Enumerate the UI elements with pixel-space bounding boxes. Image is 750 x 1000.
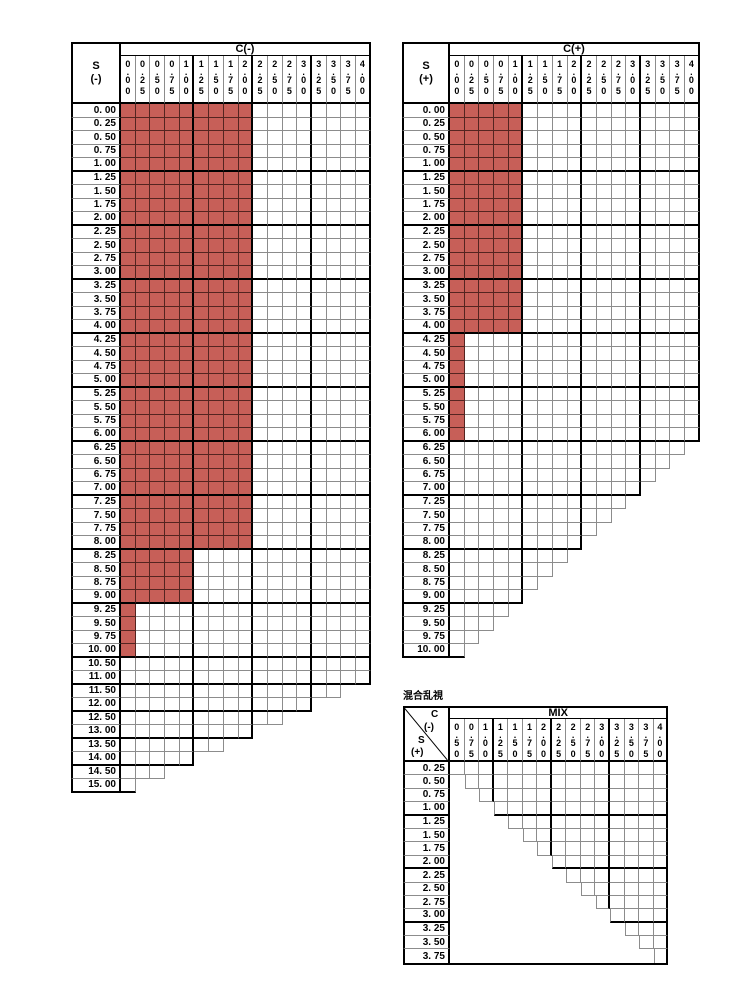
grid-cell bbox=[209, 725, 224, 739]
grid-cell bbox=[253, 158, 268, 172]
grid-cell bbox=[312, 536, 327, 550]
grid-cell bbox=[479, 536, 494, 550]
grid-cell bbox=[479, 762, 494, 775]
grid-cell bbox=[297, 442, 312, 456]
grid-cell bbox=[312, 604, 327, 618]
available-cell bbox=[479, 131, 494, 145]
grid-cell bbox=[121, 658, 136, 672]
grid-cell bbox=[283, 455, 298, 469]
grid-cell bbox=[283, 307, 298, 321]
grid-cell bbox=[597, 509, 612, 523]
grid-cell bbox=[253, 577, 268, 591]
grid-cell bbox=[568, 131, 583, 145]
grid-cell bbox=[494, 428, 509, 442]
available-cell bbox=[479, 280, 494, 294]
available-cell bbox=[150, 496, 165, 510]
available-cell bbox=[136, 401, 151, 415]
available-cell bbox=[165, 334, 180, 348]
grid-cell bbox=[268, 523, 283, 537]
grid-cell bbox=[150, 766, 165, 780]
grid-cell bbox=[553, 239, 568, 253]
grid-cell bbox=[685, 185, 700, 199]
available-cell bbox=[239, 280, 254, 294]
table-row: 3. 50 bbox=[403, 936, 668, 949]
staircase-spacer bbox=[450, 923, 625, 936]
grid-cell bbox=[253, 401, 268, 415]
available-cell bbox=[509, 118, 524, 132]
grid-cell bbox=[283, 698, 298, 712]
row-label: 1. 50 bbox=[71, 185, 121, 199]
table-row: 4. 50 bbox=[71, 347, 371, 361]
available-cell bbox=[509, 226, 524, 240]
grid-cell bbox=[253, 712, 268, 726]
column-header-digit: 5 bbox=[639, 749, 653, 760]
available-cell bbox=[239, 415, 254, 429]
corner-label: C bbox=[431, 709, 438, 720]
grid-cell bbox=[610, 762, 625, 775]
grid-cell bbox=[239, 644, 254, 658]
grid-cell bbox=[612, 347, 627, 361]
grid-cell bbox=[180, 617, 195, 631]
grid-cell bbox=[597, 280, 612, 294]
row-label: 5. 25 bbox=[402, 388, 450, 402]
grid-cell bbox=[538, 536, 553, 550]
available-cell bbox=[494, 104, 509, 118]
grid-cell bbox=[180, 644, 195, 658]
grid-cell bbox=[656, 347, 671, 361]
corner-cell: S(-) bbox=[71, 42, 121, 104]
column-header-digit: 0 bbox=[121, 86, 135, 97]
grid-cell bbox=[341, 185, 356, 199]
table-row: 7. 50 bbox=[71, 509, 371, 523]
available-cell bbox=[239, 266, 254, 280]
grid-cell bbox=[136, 658, 151, 672]
grid-cell bbox=[253, 550, 268, 564]
grid-cell bbox=[268, 104, 283, 118]
grid-cell bbox=[523, 455, 538, 469]
row-label: 9. 00 bbox=[71, 590, 121, 604]
grid-cell bbox=[312, 253, 327, 267]
grid-cell bbox=[537, 762, 552, 775]
staircase-spacer bbox=[450, 802, 494, 815]
grid-cell bbox=[509, 482, 524, 496]
grid-cell bbox=[283, 212, 298, 226]
grid-cell bbox=[356, 482, 371, 496]
available-cell bbox=[165, 131, 180, 145]
grid-cell bbox=[165, 698, 180, 712]
available-cell bbox=[224, 266, 239, 280]
available-cell bbox=[224, 347, 239, 361]
table-row: 3. 75 bbox=[71, 307, 371, 321]
row-label: 5. 00 bbox=[71, 374, 121, 388]
available-cell bbox=[180, 145, 195, 159]
grid-cell bbox=[625, 923, 640, 936]
grid-cell bbox=[465, 617, 480, 631]
grid-cell bbox=[654, 802, 669, 815]
column-header-digit: 0 bbox=[595, 738, 608, 749]
available-cell bbox=[194, 185, 209, 199]
available-cell bbox=[121, 550, 136, 564]
available-cell bbox=[121, 428, 136, 442]
column-header-digit: 5 bbox=[136, 86, 150, 97]
grid-cell bbox=[581, 842, 596, 855]
grid-cell bbox=[224, 671, 239, 685]
grid-cell bbox=[194, 604, 209, 618]
grid-cell bbox=[670, 199, 685, 213]
grid-cell bbox=[494, 455, 509, 469]
available-cell bbox=[121, 469, 136, 483]
grid-cell bbox=[553, 172, 568, 186]
grid-cell bbox=[312, 118, 327, 132]
row-label: 7. 25 bbox=[402, 496, 450, 510]
row-label: 0. 75 bbox=[403, 789, 450, 802]
table-row: 4. 50 bbox=[402, 347, 700, 361]
grid-cell bbox=[641, 374, 656, 388]
grid-cell bbox=[523, 482, 538, 496]
table-row: 1. 50 bbox=[71, 185, 371, 199]
table-row: 3. 50 bbox=[71, 293, 371, 307]
column-header-digit: 2 bbox=[523, 75, 537, 86]
column-header: 1.75 bbox=[553, 56, 568, 104]
grid-cell bbox=[509, 415, 524, 429]
grid-cell bbox=[356, 563, 371, 577]
column-header-digit: 2 bbox=[136, 75, 150, 86]
grid-cell bbox=[552, 829, 567, 842]
grid-cell bbox=[327, 496, 342, 510]
grid-cell bbox=[283, 334, 298, 348]
row-label: 0. 25 bbox=[402, 118, 450, 132]
staircase-spacer bbox=[450, 949, 654, 962]
grid-cell bbox=[582, 266, 597, 280]
grid-cell bbox=[268, 401, 283, 415]
grid-cell bbox=[327, 577, 342, 591]
available-cell bbox=[239, 253, 254, 267]
grid-cell bbox=[625, 762, 640, 775]
grid-cell bbox=[641, 185, 656, 199]
available-cell bbox=[479, 226, 494, 240]
grid-cell bbox=[312, 212, 327, 226]
grid-cell bbox=[595, 789, 610, 802]
grid-cell bbox=[121, 766, 136, 780]
grid-cell bbox=[685, 199, 700, 213]
grid-cell bbox=[356, 442, 371, 456]
available-cell bbox=[194, 401, 209, 415]
grid-cell bbox=[582, 523, 597, 537]
grid-cell bbox=[597, 185, 612, 199]
grid-cell bbox=[253, 658, 268, 672]
available-cell bbox=[121, 482, 136, 496]
grid-cell bbox=[612, 307, 627, 321]
grid-cell bbox=[566, 856, 581, 869]
column-header-digit: 5 bbox=[566, 738, 580, 749]
available-cell bbox=[180, 415, 195, 429]
table-row: 5. 00 bbox=[71, 374, 371, 388]
available-cell bbox=[494, 145, 509, 159]
grid-cell bbox=[341, 550, 356, 564]
column-header-digit: 2 bbox=[641, 75, 655, 86]
column-header: 2.75 bbox=[283, 56, 298, 104]
grid-cell bbox=[612, 442, 627, 456]
column-header-digit: 0 bbox=[150, 86, 164, 97]
grid-cell bbox=[494, 469, 509, 483]
grid-cell bbox=[165, 671, 180, 685]
grid-cell bbox=[595, 883, 610, 896]
grid-cell bbox=[641, 388, 656, 402]
grid-cell bbox=[312, 442, 327, 456]
grid-cell bbox=[553, 266, 568, 280]
grid-cell bbox=[327, 455, 342, 469]
grid-cell bbox=[553, 442, 568, 456]
grid-cell bbox=[121, 712, 136, 726]
column-header: 2.00 bbox=[568, 56, 583, 104]
grid-cell bbox=[581, 762, 596, 775]
table-row: 13. 50 bbox=[71, 739, 371, 753]
grid-cell bbox=[312, 401, 327, 415]
grid-cell bbox=[327, 401, 342, 415]
grid-cell bbox=[327, 550, 342, 564]
grid-cell bbox=[283, 685, 298, 699]
available-cell bbox=[239, 401, 254, 415]
grid-cell bbox=[180, 698, 195, 712]
grid-cell bbox=[538, 199, 553, 213]
available-cell bbox=[180, 590, 195, 604]
grid-cell bbox=[297, 509, 312, 523]
table-row: 7. 25 bbox=[71, 496, 371, 510]
available-cell bbox=[150, 428, 165, 442]
grid-cell bbox=[450, 631, 465, 645]
grid-cell bbox=[523, 775, 538, 788]
column-header: 2.25 bbox=[253, 56, 268, 104]
grid-cell bbox=[356, 266, 371, 280]
grid-cell bbox=[597, 104, 612, 118]
grid-cell bbox=[494, 361, 509, 375]
grid-cell bbox=[538, 172, 553, 186]
grid-cell bbox=[656, 293, 671, 307]
row-label: 9. 75 bbox=[71, 631, 121, 645]
row-label: 3. 50 bbox=[71, 293, 121, 307]
available-cell bbox=[209, 145, 224, 159]
available-cell bbox=[150, 401, 165, 415]
available-cell bbox=[180, 455, 195, 469]
grid-cell bbox=[239, 617, 254, 631]
grid-cell bbox=[523, 388, 538, 402]
staircase-spacer bbox=[450, 909, 610, 922]
row-label: 2. 25 bbox=[71, 226, 121, 240]
column-header-digit: 7 bbox=[465, 738, 479, 749]
grid-cell bbox=[553, 347, 568, 361]
grid-cell bbox=[341, 671, 356, 685]
available-cell bbox=[150, 293, 165, 307]
column-header-digit: 2 bbox=[253, 75, 267, 86]
available-cell bbox=[479, 118, 494, 132]
grid-cell bbox=[494, 523, 509, 537]
grid-cell bbox=[283, 536, 298, 550]
grid-cell bbox=[670, 374, 685, 388]
available-cell bbox=[180, 428, 195, 442]
grid-cell bbox=[165, 685, 180, 699]
available-cell bbox=[465, 307, 480, 321]
available-cell bbox=[209, 320, 224, 334]
row-label: 1. 75 bbox=[71, 199, 121, 213]
grid-cell bbox=[597, 131, 612, 145]
grid-cell bbox=[356, 523, 371, 537]
grid-cell bbox=[538, 523, 553, 537]
grid-cell bbox=[508, 775, 523, 788]
grid-cell bbox=[253, 320, 268, 334]
available-cell bbox=[209, 455, 224, 469]
row-label: 1. 00 bbox=[71, 158, 121, 172]
column-header-digit: 0 bbox=[450, 75, 464, 86]
available-cell bbox=[465, 293, 480, 307]
grid-cell bbox=[327, 158, 342, 172]
grid-cell bbox=[283, 496, 298, 510]
grid-cell bbox=[356, 280, 371, 294]
available-cell bbox=[209, 415, 224, 429]
column-header: 0.25 bbox=[465, 56, 480, 104]
row-label: 14. 00 bbox=[71, 752, 121, 766]
grid-cell bbox=[494, 536, 509, 550]
available-cell bbox=[121, 253, 136, 267]
grid-cell bbox=[552, 816, 567, 829]
available-cell bbox=[136, 388, 151, 402]
available-cell bbox=[224, 428, 239, 442]
grid-cell bbox=[538, 563, 553, 577]
column-header: 2.50 bbox=[566, 719, 581, 762]
available-cell bbox=[194, 469, 209, 483]
available-cell bbox=[150, 415, 165, 429]
grid-cell bbox=[209, 617, 224, 631]
grid-cell bbox=[312, 509, 327, 523]
row-label: 3. 75 bbox=[402, 307, 450, 321]
grid-cell bbox=[465, 577, 480, 591]
grid-cell bbox=[356, 199, 371, 213]
grid-cell bbox=[626, 172, 641, 186]
available-cell bbox=[180, 185, 195, 199]
table-row: 8. 50 bbox=[402, 563, 700, 577]
grid-cell bbox=[297, 496, 312, 510]
available-cell bbox=[121, 442, 136, 456]
grid-cell bbox=[341, 199, 356, 213]
corner-label: S bbox=[92, 60, 99, 73]
grid-cell bbox=[568, 212, 583, 226]
column-header: 3.50 bbox=[625, 719, 640, 762]
grid-cell bbox=[553, 280, 568, 294]
column-header-digit: 5 bbox=[523, 749, 537, 760]
grid-cell bbox=[356, 590, 371, 604]
table-row: 1. 50 bbox=[402, 185, 700, 199]
grid-cell bbox=[538, 212, 553, 226]
table-row: 2. 25 bbox=[402, 226, 700, 240]
available-cell bbox=[165, 563, 180, 577]
grid-cell bbox=[523, 563, 538, 577]
grid-cell bbox=[566, 775, 581, 788]
grid-cell bbox=[509, 496, 524, 510]
grid-cell bbox=[553, 185, 568, 199]
column-header-digit: 7 bbox=[639, 738, 653, 749]
grid-cell bbox=[297, 145, 312, 159]
table-row: 3. 50 bbox=[402, 293, 700, 307]
grid-cell bbox=[297, 104, 312, 118]
available-cell bbox=[180, 266, 195, 280]
grid-cell bbox=[283, 280, 298, 294]
grid-cell bbox=[641, 320, 656, 334]
column-header: 2.25 bbox=[582, 56, 597, 104]
column-header-digit: 0 bbox=[597, 86, 611, 97]
grid-cell bbox=[253, 590, 268, 604]
available-cell bbox=[224, 280, 239, 294]
available-cell bbox=[239, 320, 254, 334]
grid-cell bbox=[582, 280, 597, 294]
available-cell bbox=[450, 145, 465, 159]
grid-cell bbox=[685, 320, 700, 334]
column-header: 0.75 bbox=[165, 56, 180, 104]
grid-cell bbox=[180, 671, 195, 685]
available-cell bbox=[239, 496, 254, 510]
available-cell bbox=[136, 158, 151, 172]
column-header: 3.50 bbox=[656, 56, 671, 104]
grid-cell bbox=[297, 293, 312, 307]
grid-cell bbox=[312, 374, 327, 388]
grid-cell bbox=[297, 401, 312, 415]
row-label: 9. 00 bbox=[402, 590, 450, 604]
grid-cell bbox=[165, 725, 180, 739]
available-cell bbox=[494, 158, 509, 172]
grid-cell bbox=[523, 577, 538, 591]
grid-cell bbox=[670, 226, 685, 240]
available-cell bbox=[150, 334, 165, 348]
grid-cell bbox=[268, 145, 283, 159]
grid-cell bbox=[312, 685, 327, 699]
grid-cell bbox=[595, 842, 610, 855]
column-header: 0.75 bbox=[465, 719, 480, 762]
grid-cell bbox=[268, 374, 283, 388]
available-cell bbox=[509, 253, 524, 267]
grid-cell bbox=[597, 320, 612, 334]
available-cell bbox=[180, 347, 195, 361]
available-cell bbox=[465, 266, 480, 280]
table-row: 2. 00 bbox=[71, 212, 371, 226]
grid-cell bbox=[479, 401, 494, 415]
grid-cell bbox=[253, 266, 268, 280]
grid-cell bbox=[283, 644, 298, 658]
grid-cell bbox=[239, 725, 254, 739]
corner-label: (-) bbox=[424, 722, 434, 733]
column-header: 3.00 bbox=[626, 56, 641, 104]
grid-cell bbox=[312, 644, 327, 658]
available-cell bbox=[239, 104, 254, 118]
available-cell bbox=[239, 523, 254, 537]
available-cell bbox=[209, 442, 224, 456]
grid-cell bbox=[224, 685, 239, 699]
grid-cell bbox=[612, 293, 627, 307]
grid-cell bbox=[121, 725, 136, 739]
grid-cell bbox=[494, 775, 509, 788]
grid-cell bbox=[479, 590, 494, 604]
column-header-digit: 0 bbox=[625, 749, 639, 760]
grid-cell bbox=[253, 226, 268, 240]
grid-cell bbox=[253, 145, 268, 159]
available-cell bbox=[450, 320, 465, 334]
grid-cell bbox=[670, 118, 685, 132]
grid-cell bbox=[625, 869, 640, 882]
grid-cell bbox=[209, 739, 224, 753]
grid-cell bbox=[597, 118, 612, 132]
grid-cell bbox=[553, 320, 568, 334]
grid-cell bbox=[356, 509, 371, 523]
grid-cell bbox=[268, 644, 283, 658]
column-header: 1.25 bbox=[194, 56, 209, 104]
grid-cell bbox=[479, 577, 494, 591]
